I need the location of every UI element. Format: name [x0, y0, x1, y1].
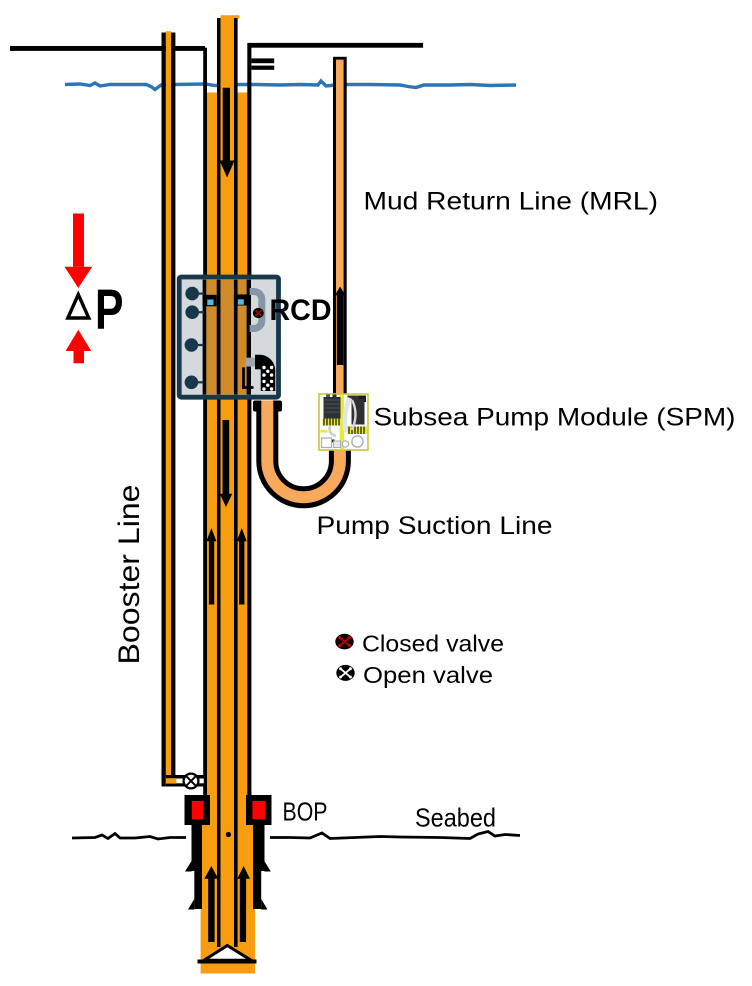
svg-text:Pump Suction Line: Pump Suction Line — [317, 512, 553, 540]
svg-text:Mud Return Line (MRL): Mud Return Line (MRL) — [364, 188, 659, 216]
svg-text:RCD: RCD — [270, 294, 332, 327]
svg-text:P: P — [95, 278, 124, 342]
svg-text:Booster Line: Booster Line — [113, 485, 146, 665]
svg-text:BOP: BOP — [283, 797, 328, 827]
svg-text:Subsea Pump Module (SPM): Subsea Pump Module (SPM) — [374, 404, 736, 432]
svg-text:Seabed: Seabed — [415, 803, 496, 833]
svg-text:Open valve: Open valve — [363, 662, 493, 688]
svg-text:Closed valve: Closed valve — [362, 631, 504, 657]
